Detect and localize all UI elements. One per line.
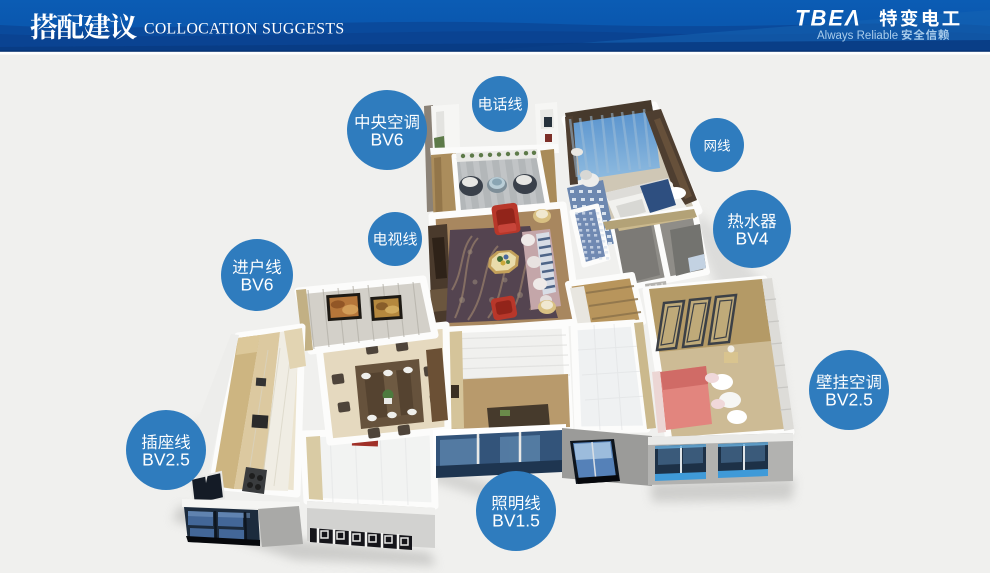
- svg-text:BV2.5: BV2.5: [825, 390, 873, 410]
- svg-text:BV2.5: BV2.5: [142, 450, 190, 470]
- svg-text:BV4: BV4: [735, 229, 768, 249]
- svg-text:TBEΛ: TBEΛ: [795, 6, 862, 31]
- svg-text:COLLOCATION SUGGESTS: COLLOCATION SUGGESTS: [144, 21, 344, 38]
- svg-text:BV1.5: BV1.5: [492, 511, 540, 531]
- svg-text:Always Reliable: Always Reliable: [817, 30, 898, 42]
- svg-text:BV6: BV6: [240, 275, 273, 295]
- svg-text:BV6: BV6: [370, 130, 403, 150]
